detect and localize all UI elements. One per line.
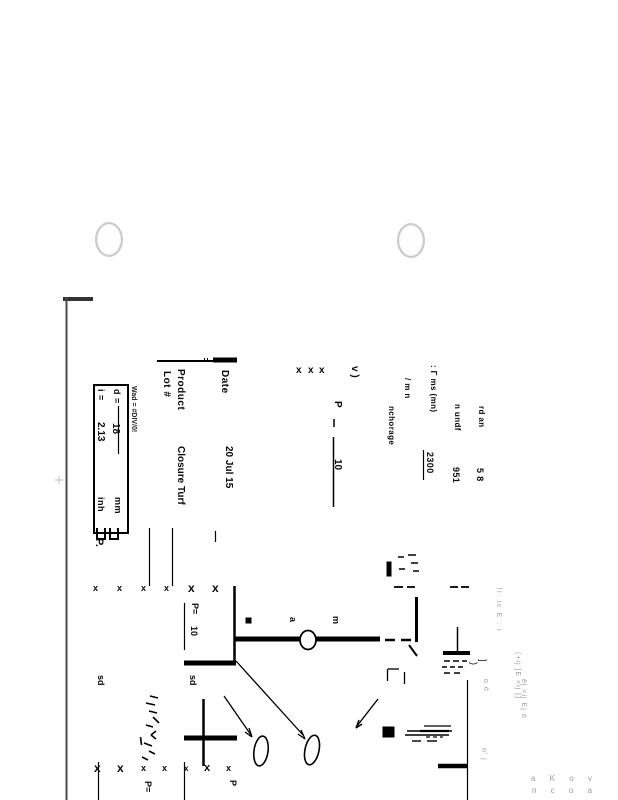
- p-small-note: P: [228, 780, 237, 786]
- x-mark: x: [94, 762, 101, 774]
- fragment-rd-value: 5 8: [475, 468, 484, 482]
- p-note-value: 10: [332, 459, 342, 470]
- x-mark: x: [184, 765, 188, 773]
- d-value: 18: [110, 423, 120, 434]
- m-glyph: m: [331, 616, 340, 624]
- fragment-ms-value: 2300: [425, 452, 434, 474]
- paren-glyph: ): [469, 662, 478, 665]
- x-mark: x: [212, 582, 219, 594]
- hole-punch-left: [95, 222, 123, 257]
- wad-note: Wad = #DIV/0!: [130, 386, 137, 432]
- p-eq-value: 10: [189, 626, 198, 636]
- d-unit: mm: [113, 497, 122, 514]
- d-label: d =: [112, 389, 121, 404]
- date-label: Date: [219, 370, 229, 394]
- date-value: 20 Jul 15: [223, 446, 233, 488]
- faint-fragment: o ö: [482, 679, 489, 692]
- x-mark: x: [164, 584, 169, 593]
- i-value: 2.13: [95, 422, 105, 441]
- faint-fragment: n' j: [480, 748, 487, 761]
- p-eq-note: P=: [190, 603, 199, 614]
- scanned-document-page: Date 20 Jul 15 Product Closure Turf Lot …: [0, 0, 618, 800]
- fragment-rd-an: rd an: [477, 406, 485, 428]
- fragment-undf-value: 951: [451, 467, 460, 483]
- fragment-anchorage: nchorage: [387, 406, 395, 445]
- a-glyph: a: [288, 617, 297, 622]
- handwritten-scribbles: [141, 696, 160, 760]
- i-unit: inh: [96, 497, 105, 512]
- p-eq-note: P=: [143, 781, 152, 792]
- fragment-ms-mn: : Γ ms (mn): [429, 365, 437, 412]
- x-mark: x: [117, 584, 122, 593]
- faint-fragment: li: ic E : i: [495, 588, 502, 632]
- x-mark: x: [296, 366, 302, 376]
- product-value: Closure Turf: [175, 446, 185, 505]
- fragment-mn: / m n: [403, 378, 411, 399]
- check-note: v ): [349, 366, 359, 378]
- sd-note: sd: [96, 675, 105, 686]
- faint-fragment: n c o a: [532, 787, 598, 795]
- x-mark: x: [204, 763, 210, 774]
- sd-note: sd: [188, 675, 197, 686]
- x-mark: x: [93, 584, 98, 593]
- x-mark: x: [319, 366, 325, 376]
- hole-punch-right: [397, 223, 425, 258]
- p-note: P: [332, 401, 342, 408]
- x-mark: x: [141, 584, 146, 593]
- x-mark: x: [162, 764, 167, 773]
- bracket-glyph: ]: [478, 659, 487, 662]
- x-mark: x: [141, 764, 146, 773]
- p-bold-mark: P.: [93, 538, 104, 547]
- anchor-sketch-right: [356, 555, 470, 800]
- x-mark: x: [188, 582, 195, 594]
- i-label: i =: [96, 389, 105, 401]
- fragment-undf: n undf: [453, 404, 461, 431]
- page-edge: [55, 297, 93, 800]
- staple-mark: [109, 528, 119, 540]
- product-label: Product: [175, 369, 185, 410]
- lot-label: Lot #: [161, 371, 171, 397]
- x-mark: x: [226, 764, 231, 773]
- x-mark: x: [308, 366, 314, 376]
- faint-fragment: a K o v: [531, 775, 598, 783]
- faint-fragment: ëj <ij Ej ö: [520, 679, 527, 719]
- x-mark: x: [117, 762, 124, 774]
